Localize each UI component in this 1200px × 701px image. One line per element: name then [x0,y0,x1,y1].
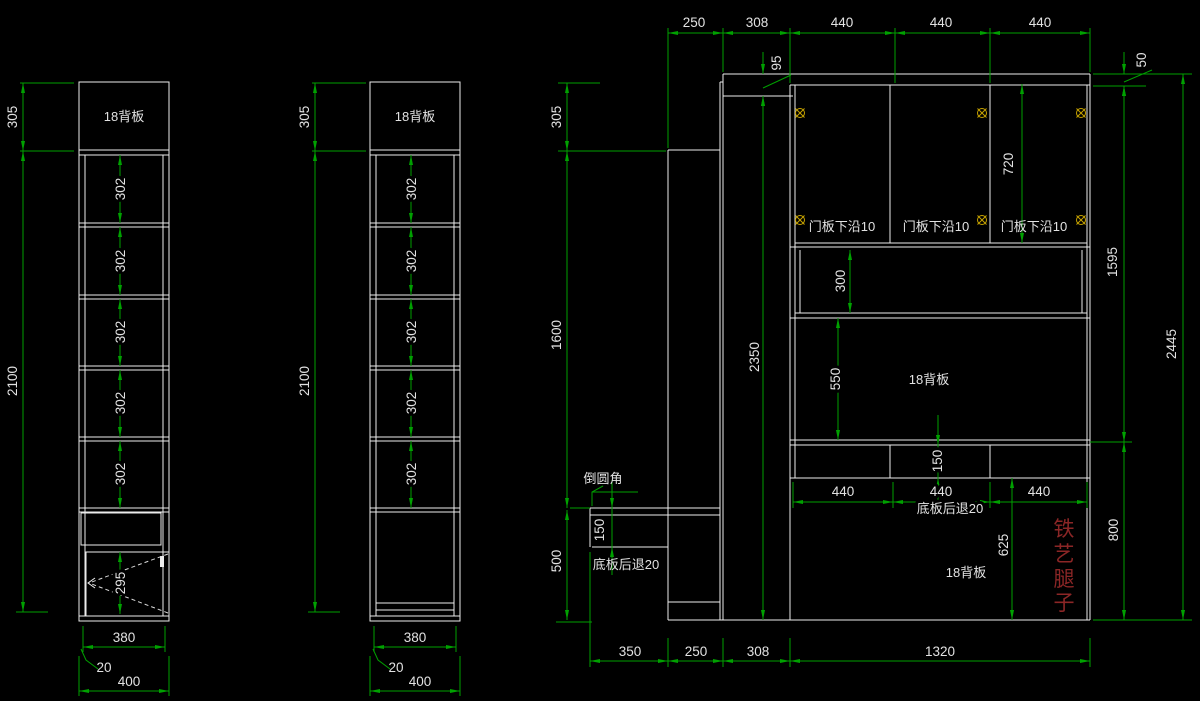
dim-mid-440-3: 440 [1028,484,1051,499]
dim-bottom-350: 350 [619,644,642,659]
dim-shelf-3: 302 [113,321,128,344]
dim-shelf-3: 302 [404,321,419,344]
dim-shelf-4: 302 [404,392,419,415]
dim-bottom-1320: 1320 [925,644,955,659]
dim-625-lower: 625 [996,534,1011,557]
dim-150-band: 150 [930,450,945,473]
dim-2100-middle: 2100 [297,366,312,396]
dim-1595-right: 1595 [1105,247,1120,277]
hinge-markers [796,109,1086,225]
dim-300-niche: 300 [833,270,848,293]
iron-legs-char-2: 艺 [1054,543,1075,566]
dim-380-middle: 380 [404,630,427,645]
dim-20-left: 20 [96,660,111,675]
door-handle [160,556,164,567]
left-cabinet-side-view: 18背板 305 2100 302 302 302 302 302 295 38… [5,82,169,696]
door-note-3: 门板下沿10 [1001,219,1067,234]
dim-305-middle: 305 [297,106,312,129]
dim-2350-inner: 2350 [747,342,762,372]
dim-20-middle: 20 [388,660,403,675]
desk-recess-note: 底板后退20 [593,557,659,572]
iron-legs-char-3: 腿 [1054,568,1075,591]
hinge-icon [796,216,805,225]
dim-top-440-1: 440 [831,15,854,30]
middle-view-back-panel-label: 18背板 [395,109,435,124]
dim-top-308: 308 [746,15,769,30]
dim-150-desk: 150 [592,519,607,542]
dim-top-440-2: 440 [930,15,953,30]
door-note-1: 门板下沿10 [809,219,875,234]
dim-bottom-308: 308 [747,644,770,659]
dim-95-crown: 95 [769,55,784,70]
dim-50-rail: 50 [1134,52,1149,67]
dim-500-elev: 500 [549,550,564,573]
dim-720-door: 720 [1001,153,1016,176]
left-view-dimension-lines [16,83,169,696]
hinge-icon [796,109,805,118]
left-view-back-panel-label: 18背板 [104,109,144,124]
desk-corner-note: 倒圆角 [583,471,622,486]
dim-1600-elev: 1600 [549,320,564,350]
cad-drawing-stage: 18背板 305 2100 302 302 302 302 302 295 38… [0,0,1200,701]
iron-legs-label: 铁 艺 腿 子 [1054,518,1075,615]
dim-shelf-2: 302 [404,250,419,273]
dim-bottom-250: 250 [685,644,708,659]
drawer-front [81,513,161,545]
cad-canvas: 18背板 305 2100 302 302 302 302 302 295 38… [0,0,1200,701]
hinge-icon [1077,216,1086,225]
iron-legs-char-1: 铁 [1054,518,1075,541]
dim-550-back: 550 [828,368,843,391]
dim-shelf-1: 302 [404,178,419,201]
dim-400-middle: 400 [409,674,432,689]
hinge-icon [978,109,987,118]
dim-mid-440-2: 440 [930,484,953,499]
door-swing-dashed-lines [88,554,168,613]
dim-305-left: 305 [5,106,20,129]
dim-shelf-2: 302 [113,250,128,273]
dim-380-left: 380 [113,630,136,645]
middle-view-dimension-lines [308,83,460,696]
lower-back-panel-label: 18背板 [946,565,986,580]
dim-shelf-4: 302 [113,392,128,415]
hinge-icon [1077,109,1086,118]
door-note-2: 门板下沿10 [903,219,969,234]
dim-305-elev: 305 [549,106,564,129]
dim-400-left: 400 [118,674,141,689]
mid-recess-note: 底板后退20 [917,501,983,516]
front-elevation-view: 250 308 440 440 440 95 50 305 1600 500 2… [549,15,1192,667]
dim-2445-total: 2445 [1164,329,1179,359]
left-view-structure-lines [79,82,169,621]
dim-2100-left: 2100 [5,366,20,396]
dim-shelf-5: 302 [404,463,419,486]
dim-shelf-5: 302 [113,463,128,486]
dim-mid-440-1: 440 [832,484,855,499]
dim-shelf-1: 302 [113,178,128,201]
dim-top-250: 250 [683,15,706,30]
hinge-icon [978,216,987,225]
dim-295-door: 295 [113,572,128,595]
iron-legs-char-4: 子 [1054,592,1075,615]
middle-view-structure-lines [370,82,460,621]
middle-cabinet-side-view: 18背板 305 2100 302 302 302 302 302 380 20… [297,82,460,696]
dim-top-440-3: 440 [1029,15,1052,30]
upper-back-panel-label: 18背板 [909,372,949,387]
dim-800-right: 800 [1106,519,1121,542]
